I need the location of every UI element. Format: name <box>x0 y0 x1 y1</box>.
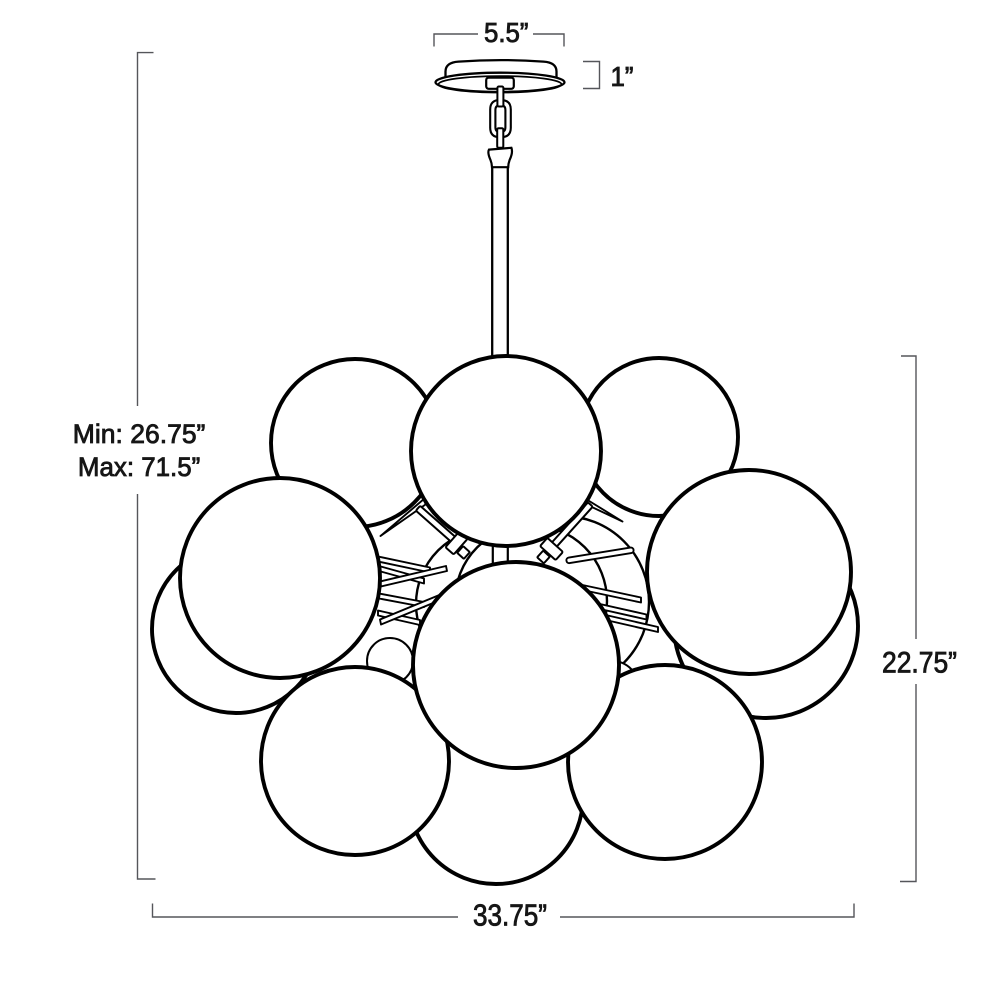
svg-text:Max: 71.5”: Max: 71.5” <box>78 452 200 482</box>
svg-text:Min: 26.75”: Min: 26.75” <box>73 419 206 449</box>
svg-text:22.75”: 22.75” <box>882 646 957 679</box>
svg-text:5.5”: 5.5” <box>484 17 529 48</box>
svg-text:1”: 1” <box>611 61 634 92</box>
svg-text:33.75”: 33.75” <box>473 899 547 933</box>
